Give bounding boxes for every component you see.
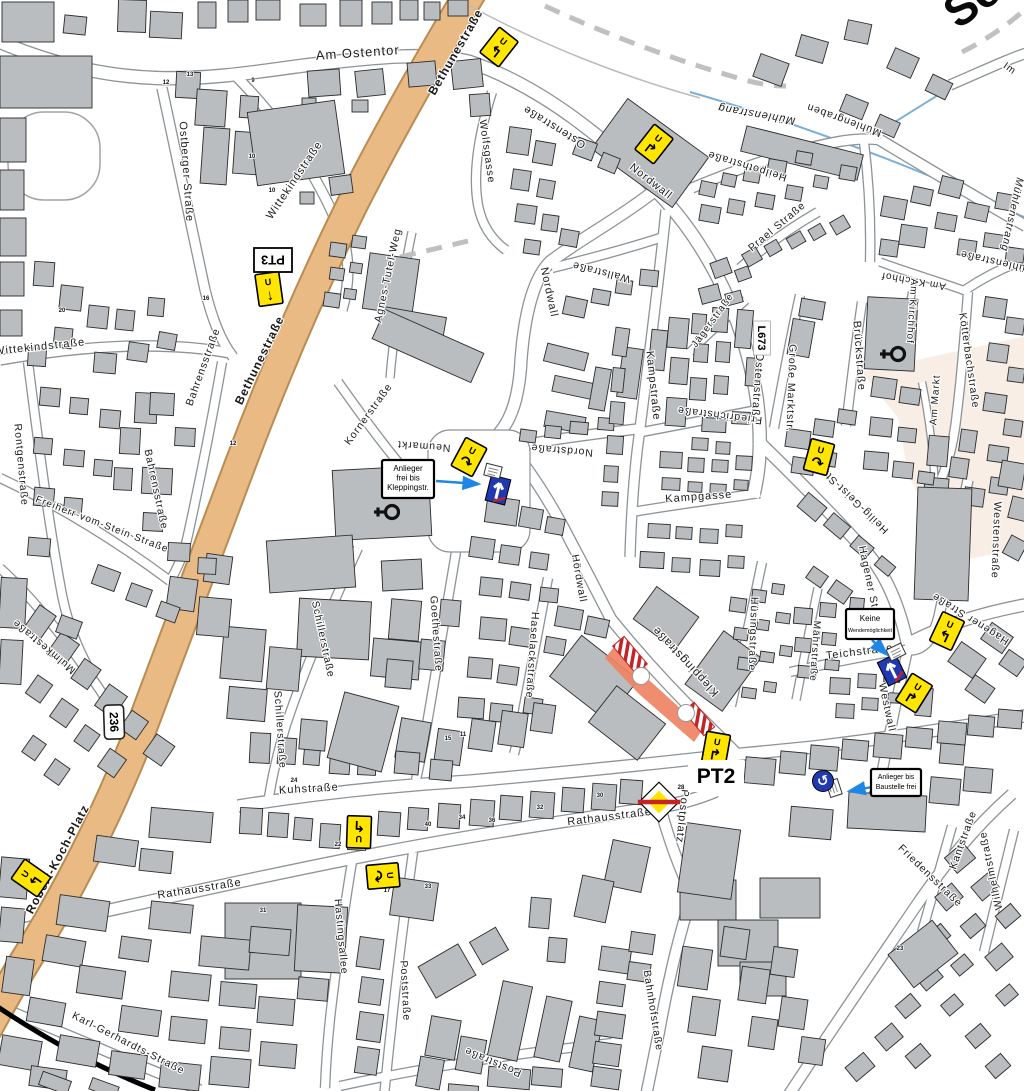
building (0, 118, 26, 162)
building (139, 848, 173, 873)
building (544, 425, 561, 439)
building (698, 284, 721, 305)
building (844, 20, 872, 45)
building (760, 878, 820, 918)
building (917, 471, 935, 485)
building (822, 632, 837, 645)
building (297, 598, 372, 660)
building (418, 944, 476, 998)
building (394, 751, 420, 775)
building (748, 1016, 778, 1049)
building (688, 458, 705, 473)
building (692, 438, 709, 451)
note-pointer-arrow (850, 787, 872, 791)
building (738, 966, 770, 1004)
building (113, 468, 132, 491)
building (830, 677, 851, 694)
detour-u-label: U (385, 872, 396, 879)
building (0, 907, 25, 943)
building (698, 1046, 732, 1082)
building (356, 1011, 384, 1042)
building (869, 417, 893, 437)
building (1005, 317, 1024, 335)
building (591, 1066, 622, 1090)
building (529, 897, 552, 929)
building (1007, 367, 1024, 383)
building (544, 636, 566, 655)
building (424, 2, 440, 20)
building (793, 607, 812, 625)
building (259, 1041, 297, 1068)
building (91, 564, 120, 591)
building (667, 317, 690, 349)
building (720, 926, 750, 959)
dashed-boundary (545, 6, 786, 86)
building (299, 719, 328, 751)
note-line: Wendemöglichkeit (848, 628, 892, 634)
building (873, 733, 903, 759)
building (611, 367, 625, 392)
building (27, 537, 50, 557)
building (349, 262, 362, 274)
detour-sign: U↓ (255, 271, 283, 306)
house-number: 24 (291, 778, 298, 784)
building (562, 296, 587, 318)
building (198, 558, 217, 575)
building (93, 459, 112, 477)
building (529, 552, 549, 570)
building (119, 427, 140, 454)
building (530, 703, 556, 734)
building (699, 204, 721, 223)
building (385, 659, 413, 689)
building (965, 675, 995, 704)
building (228, 0, 248, 22)
building (676, 527, 693, 540)
building (497, 665, 519, 686)
building (588, 367, 611, 411)
building (532, 140, 556, 165)
building (959, 429, 978, 453)
building (169, 971, 211, 1001)
building (545, 517, 566, 536)
house-number: 17 (384, 888, 391, 894)
note-line: Baustelle frei (876, 784, 917, 791)
building (785, 185, 803, 202)
building (352, 100, 368, 112)
building (149, 392, 174, 415)
building (25, 675, 52, 703)
building (591, 783, 617, 811)
house-number: 33 (425, 884, 432, 890)
building (862, 698, 879, 711)
building (377, 811, 401, 836)
badge-label: PT2 (697, 765, 736, 788)
map-viewport: Am OstentorOstberger StraßeWittekindstra… (0, 0, 1024, 1091)
building (307, 69, 341, 97)
building (591, 289, 611, 306)
building (983, 297, 1008, 320)
building (967, 715, 995, 737)
building (199, 936, 251, 970)
building (911, 186, 934, 206)
building (939, 743, 965, 765)
building (905, 727, 933, 749)
building (329, 267, 345, 281)
building (871, 376, 898, 399)
street-label: Rathausstraße (157, 876, 243, 901)
building (196, 597, 231, 638)
detour-arrow-icon: ↷ (368, 870, 386, 884)
building (779, 751, 807, 775)
building (0, 639, 23, 684)
building (899, 224, 928, 247)
building (559, 229, 580, 248)
construction-point (678, 705, 695, 722)
route-l673-badge: L673 (754, 321, 771, 355)
building (863, 451, 888, 471)
building (22, 735, 47, 761)
building (771, 583, 784, 595)
building (448, 0, 468, 16)
building (960, 913, 986, 938)
city-map: Am OstentorOstberger StraßeWittekindstra… (0, 0, 1024, 1091)
building (841, 739, 869, 761)
building (938, 176, 964, 199)
building (574, 875, 614, 923)
building (951, 954, 974, 976)
building (479, 617, 507, 641)
building (300, 4, 326, 26)
building (699, 180, 718, 197)
building (257, 996, 295, 1025)
house-number: 11 (460, 732, 467, 738)
building (468, 718, 496, 751)
building (688, 996, 721, 1036)
building (672, 558, 691, 573)
building (775, 612, 790, 624)
building (343, 288, 356, 300)
building (266, 647, 302, 692)
building (741, 687, 756, 699)
building (606, 435, 623, 454)
building (0, 170, 24, 210)
building (327, 692, 399, 772)
building (74, 725, 100, 752)
building (400, 0, 418, 20)
building (515, 204, 537, 225)
building (356, 936, 384, 969)
building (941, 994, 964, 1016)
street-label: Nordwall (538, 266, 560, 318)
building (640, 551, 665, 568)
building (839, 165, 857, 182)
building (509, 582, 531, 601)
building (987, 343, 1009, 364)
building (149, 11, 182, 39)
building (499, 795, 523, 820)
building (905, 1043, 931, 1068)
building (537, 179, 556, 200)
building (0, 262, 24, 296)
building (778, 996, 808, 1029)
note-line: Keine (860, 614, 881, 623)
building (996, 984, 1019, 1006)
building (175, 427, 196, 446)
building (63, 15, 87, 35)
street-label: Wallstraße (571, 259, 632, 285)
detour-sign: U↷ (366, 863, 400, 890)
building (734, 309, 753, 348)
building (149, 807, 213, 842)
building (329, 242, 347, 258)
badge-label: 236 (107, 712, 122, 733)
house-number: 32 (537, 805, 544, 811)
note-line: frei bis (396, 474, 420, 483)
building (266, 535, 355, 593)
building (727, 199, 745, 216)
detour-u-label: U (355, 834, 362, 844)
building (117, 0, 146, 32)
building (355, 69, 386, 98)
building (249, 732, 271, 763)
house-number: 22 (335, 842, 342, 848)
building (813, 419, 835, 438)
building (629, 931, 656, 954)
pt3-badge: PT3 (254, 248, 292, 272)
building (195, 89, 227, 127)
house-number: 10 (249, 154, 256, 160)
building (819, 602, 836, 617)
building (44, 759, 70, 786)
building (523, 239, 541, 255)
building (0, 56, 92, 108)
building (759, 651, 774, 663)
building (429, 759, 453, 781)
building (744, 757, 776, 786)
building (963, 767, 993, 793)
building (609, 401, 625, 424)
building (809, 745, 839, 771)
building (547, 937, 567, 962)
house-number: 28 (678, 785, 685, 791)
street-label: Rontgenstraße (11, 423, 30, 506)
annotation-note-anlieger-baustelle: Anlieger bis Baustelle frei (850, 769, 921, 796)
building (439, 599, 461, 627)
house-number: 31 (260, 908, 267, 914)
building (99, 409, 120, 429)
building (677, 946, 712, 990)
building (87, 305, 109, 329)
note-line: Kleppingstr. (387, 483, 429, 492)
house-number: 15 (445, 736, 452, 742)
building (351, 235, 367, 249)
house-number: 40 (425, 822, 432, 828)
house-number: 12 (230, 441, 237, 447)
note-line: Anlieger (393, 464, 423, 473)
building (879, 239, 899, 257)
building (729, 597, 747, 613)
detour-arrow-icon: ↰ (353, 817, 366, 834)
building (929, 777, 961, 806)
building (689, 377, 706, 400)
building (798, 1036, 825, 1065)
building (880, 196, 907, 220)
badge-label: L673 (755, 325, 767, 350)
building (119, 936, 152, 962)
building (372, 2, 392, 24)
building (570, 421, 589, 435)
building (329, 175, 353, 196)
building (539, 587, 558, 603)
building (998, 460, 1024, 490)
generated-map-layer: Am OstentorOstberger StraßeWittekindstra… (0, 0, 1024, 1091)
building (33, 437, 52, 455)
building (198, 2, 216, 28)
building (700, 529, 719, 544)
building (584, 616, 609, 638)
building (927, 435, 950, 467)
building (726, 525, 743, 538)
building (734, 480, 749, 491)
building (200, 127, 230, 185)
building (847, 792, 927, 832)
building (597, 981, 626, 1006)
building (267, 812, 289, 837)
building (149, 901, 194, 933)
street-label: Am Kirchhof (904, 278, 920, 344)
building (256, 0, 280, 20)
building (935, 212, 957, 231)
building (858, 674, 877, 689)
house-number: 34 (459, 815, 466, 821)
building (734, 266, 751, 282)
building (713, 376, 728, 395)
building (965, 1023, 991, 1048)
building (598, 946, 631, 974)
building (470, 927, 509, 965)
building (518, 506, 543, 530)
building (56, 895, 110, 932)
building (519, 429, 537, 443)
building (794, 637, 811, 652)
badge-label: PT3 (261, 253, 285, 268)
street-label: Haselackstraße (523, 611, 541, 699)
house-number: 16 (203, 296, 210, 302)
building (806, 566, 829, 588)
building (733, 627, 749, 641)
building (447, 1084, 478, 1091)
building (937, 721, 967, 745)
house-number: 30 (597, 793, 604, 799)
building (227, 686, 268, 721)
building (63, 449, 84, 467)
building (813, 175, 829, 189)
house-number: 10 (269, 188, 276, 194)
building (543, 343, 588, 371)
building (925, 74, 953, 100)
building (249, 926, 291, 955)
building (93, 352, 117, 374)
building (897, 427, 916, 443)
house-number: 13 (187, 72, 194, 78)
building (594, 1011, 625, 1039)
building (219, 1027, 251, 1052)
building (728, 556, 745, 569)
building (499, 545, 521, 566)
building (845, 1052, 875, 1081)
building (795, 151, 813, 166)
u-turn-sign: ↺ (813, 771, 834, 792)
building (0, 310, 22, 336)
building (416, 1056, 445, 1090)
building (763, 681, 776, 693)
building (457, 697, 484, 719)
building (830, 215, 851, 235)
building (736, 456, 753, 471)
building (323, 292, 341, 308)
building (127, 342, 149, 363)
building (219, 981, 257, 1008)
building (33, 261, 55, 286)
building (69, 397, 88, 415)
building (157, 332, 178, 351)
house-number: 20 (59, 308, 66, 314)
house-number: 12 (163, 80, 170, 86)
building (837, 409, 857, 425)
building (209, 1056, 251, 1087)
building (983, 393, 1007, 414)
building (498, 710, 528, 747)
note-line: Anlieger bis (878, 774, 915, 781)
building (293, 817, 313, 840)
building (715, 342, 730, 363)
building (892, 461, 914, 479)
building (541, 214, 559, 232)
building (340, 0, 362, 26)
building (531, 1067, 562, 1088)
building (168, 542, 191, 561)
detour-sign: U↰ (346, 816, 371, 849)
building (511, 169, 532, 191)
building (2, 956, 35, 996)
building (115, 309, 135, 331)
building (89, 1078, 119, 1091)
building (126, 583, 153, 607)
building (779, 645, 792, 657)
building (506, 127, 531, 156)
building (297, 977, 329, 1002)
street-label: Poststraße (397, 960, 412, 1021)
building (49, 698, 78, 727)
building (648, 523, 671, 538)
building (425, 1016, 461, 1061)
building (770, 946, 798, 977)
building (300, 192, 314, 204)
building (76, 965, 125, 999)
route-236-badge: 236 (103, 705, 124, 740)
building (554, 606, 583, 630)
building (2, 2, 54, 42)
building (593, 1041, 622, 1066)
building (354, 1047, 379, 1076)
building (358, 977, 383, 1006)
building (169, 1016, 207, 1044)
building (789, 806, 833, 840)
building (716, 442, 731, 455)
building (660, 451, 683, 468)
building (836, 704, 855, 719)
